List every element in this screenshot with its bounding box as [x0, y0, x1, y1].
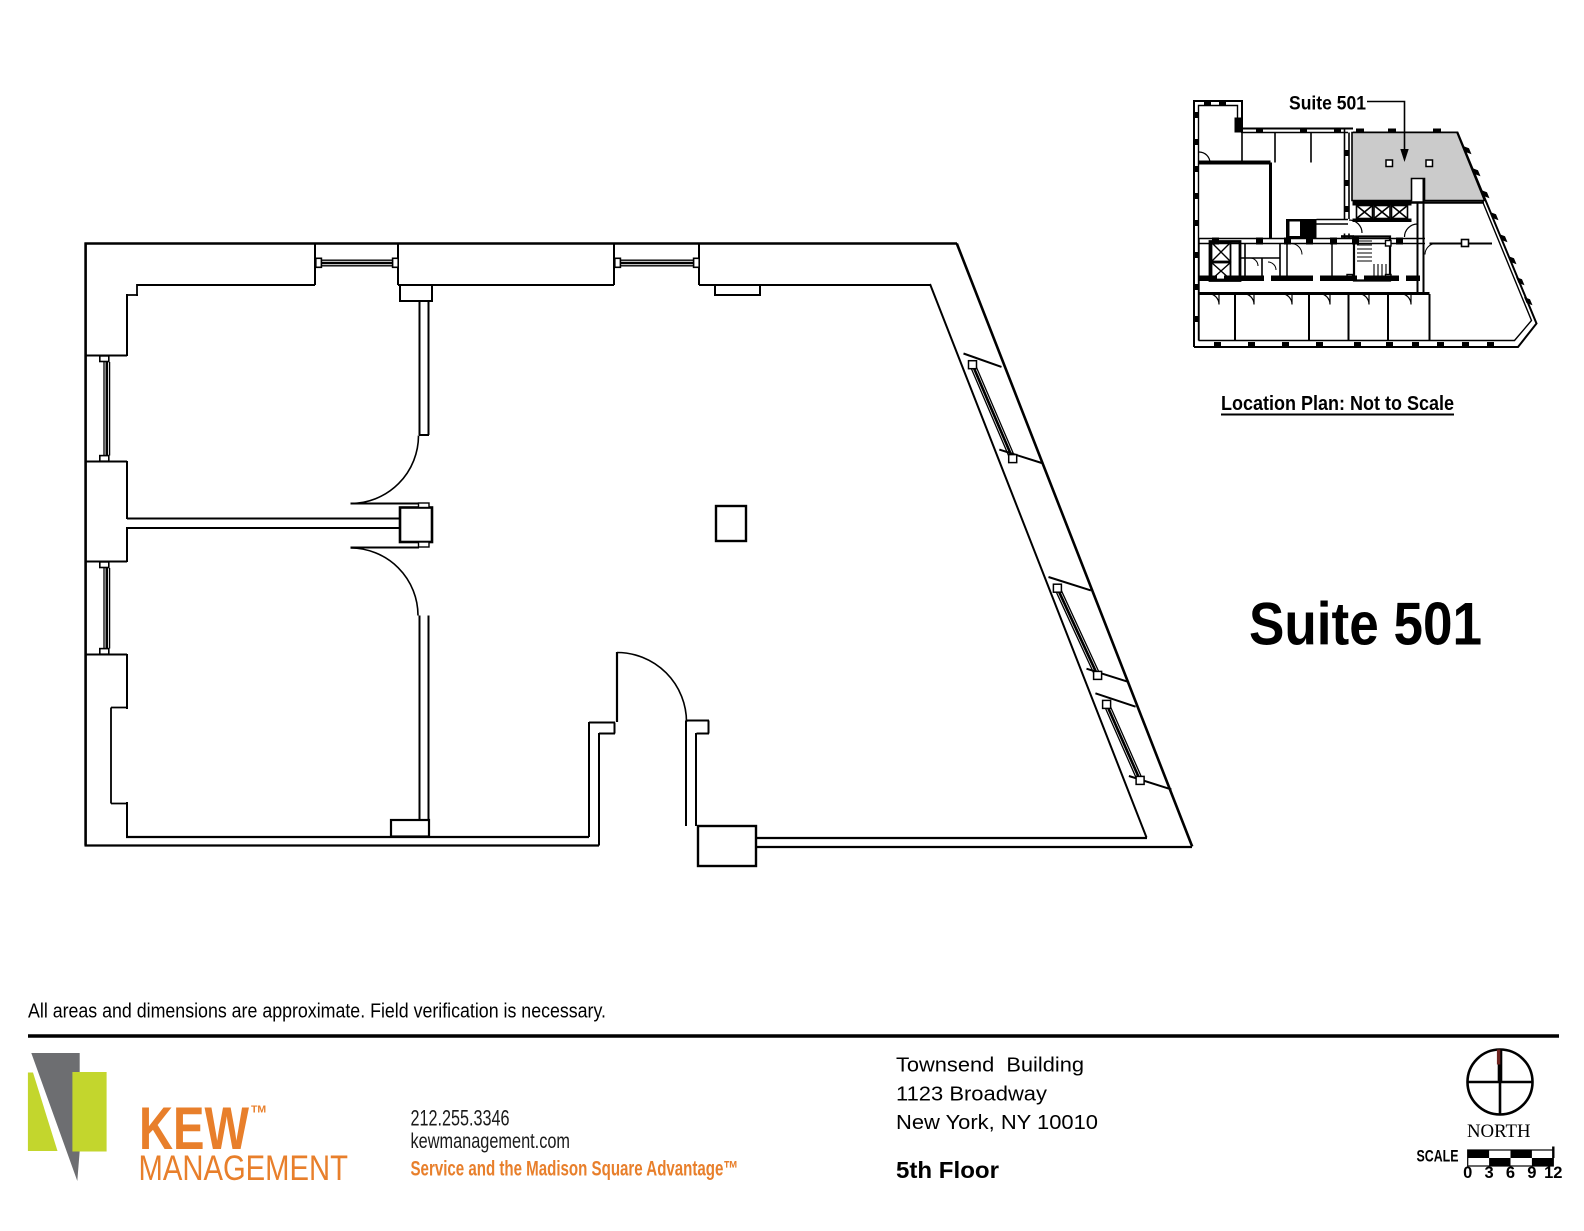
svg-text:kewmanagement.com: kewmanagement.com — [411, 1130, 571, 1153]
svg-text:5th Floor: 5th Floor — [896, 1157, 999, 1183]
svg-text:All areas and dimensions are a: All areas and dimensions are approximate… — [28, 1000, 606, 1023]
svg-text:212.255.3346: 212.255.3346 — [411, 1106, 510, 1131]
svg-text:New York, NY 10010: New York, NY 10010 — [896, 1111, 1098, 1134]
svg-text:Suite 501: Suite 501 — [1289, 93, 1366, 115]
svg-text:3: 3 — [1485, 1164, 1494, 1182]
svg-text:SCALE: SCALE — [1417, 1148, 1459, 1166]
svg-text:1123 Broadway: 1123 Broadway — [896, 1083, 1048, 1106]
svg-text:TM: TM — [251, 1104, 266, 1116]
svg-text:NORTH: NORTH — [1467, 1122, 1531, 1142]
svg-text:Service and the Madison Square: Service and the Madison Square Advantage… — [411, 1158, 739, 1181]
svg-text:MANAGEMENT: MANAGEMENT — [139, 1149, 349, 1188]
svg-text:Suite 501: Suite 501 — [1249, 591, 1482, 658]
svg-text:Location Plan: Not to Scale: Location Plan: Not to Scale — [1221, 392, 1454, 415]
svg-text:0: 0 — [1463, 1164, 1472, 1182]
svg-text:6: 6 — [1506, 1164, 1515, 1182]
svg-text:9: 9 — [1527, 1164, 1536, 1182]
svg-text:12: 12 — [1544, 1164, 1562, 1182]
svg-text:Townsend Building: Townsend Building — [896, 1054, 1084, 1077]
